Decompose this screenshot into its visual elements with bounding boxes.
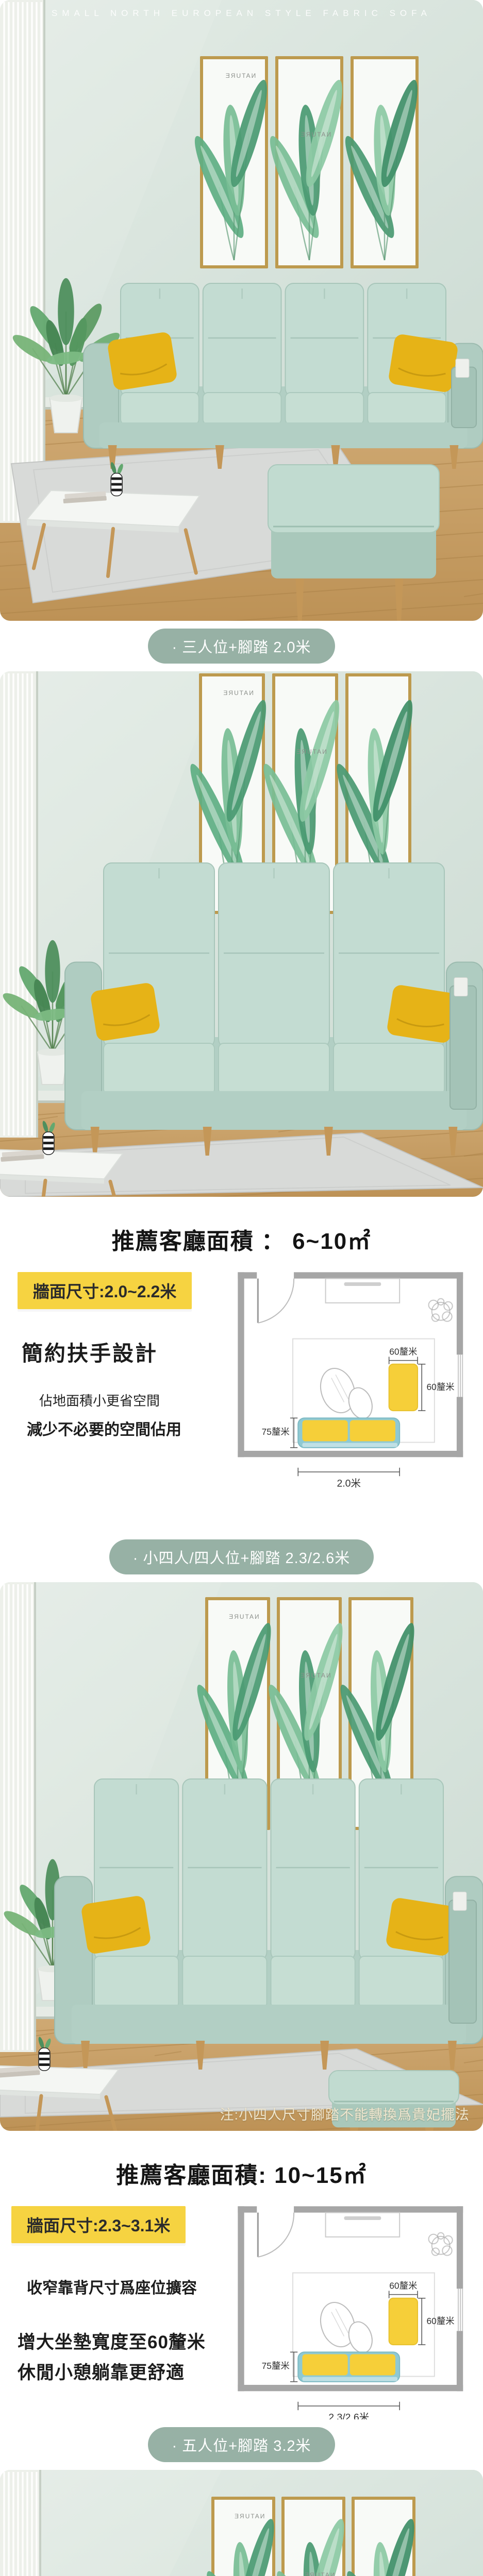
plan-plant-icon bbox=[438, 1299, 444, 1305]
plan-dim-top: 60釐米 bbox=[389, 1346, 417, 1357]
floor-plan: 60釐米60釐米75釐米2.0米 bbox=[230, 1265, 479, 1493]
svg-text:NATURE: NATURE bbox=[234, 2513, 264, 2520]
svg-text:NATURE: NATURE bbox=[222, 689, 253, 697]
feature-text-column-2: 牆面尺寸:2.3~3.1米 收窄靠背尺寸爲座位擴容 增大坐墊寬度至60釐米 休閒… bbox=[18, 2193, 230, 2384]
plan-plant-icon bbox=[442, 2246, 452, 2255]
plan-dim-left: 75釐米 bbox=[262, 2361, 290, 2371]
section-recommend-6-10: 推薦客廳面積 ： 6~10㎡ 牆面尺寸:2.0~2.2米 簡約扶手設計 佔地面積… bbox=[0, 1197, 483, 1532]
plan-plant-icon bbox=[442, 1312, 452, 1321]
sofa-product-detail-page: NATURENATURE SMALL NORTH EUROPEAN STYLE … bbox=[0, 0, 483, 2576]
svg-text:NATURE: NATURE bbox=[300, 131, 331, 138]
accent-pillow bbox=[90, 982, 161, 1042]
plan-plant-icon bbox=[432, 2248, 439, 2255]
feature-line: 簡約扶手設計 bbox=[22, 1336, 230, 1367]
floor-plan: 60釐米60釐米75釐米2.3/2.6米 bbox=[230, 2199, 479, 2419]
recommended-area-heading-1: 推薦客廳面積 ： 6~10㎡ bbox=[0, 1223, 483, 1256]
accent-pillow bbox=[80, 1895, 152, 1955]
living-room-scene: NATURENATURE bbox=[0, 2470, 483, 2576]
feature-line: 收窄靠背尺寸爲座位擴容 bbox=[27, 2275, 230, 2298]
badge-row-three-seat: · 三人位+腳踏 2.0米 bbox=[0, 621, 483, 671]
photo-four-seat-room: NATURENATURE 注:小四人尺寸腳踏不能轉換爲貴妃擺法 bbox=[0, 1582, 483, 2131]
photo-header-caption: SMALL NORTH EUROPEAN STYLE FABRIC SOFA bbox=[0, 8, 483, 19]
living-room-scene: NATURENATURE bbox=[0, 0, 483, 621]
photo-note: 注:小四人尺寸腳踏不能轉換爲貴妃擺法 bbox=[220, 2104, 470, 2124]
fabric-sofa bbox=[65, 863, 483, 1156]
plan-dim-right: 60釐米 bbox=[426, 2316, 454, 2326]
section-body-1: 牆面尺寸:2.0~2.2米 簡約扶手設計 佔地面積小更省空間 減少不必要的空間佔… bbox=[0, 1256, 483, 1493]
accent-pillow bbox=[107, 331, 178, 391]
svg-text:NATURE: NATURE bbox=[299, 1672, 330, 1679]
feature-line: 增大坐墊寬度至60釐米 bbox=[18, 2328, 230, 2354]
badge-row-five-seat: · 五人位+腳踏 3.2米 bbox=[0, 2419, 483, 2470]
accent-pillow bbox=[386, 984, 457, 1044]
window-blinds bbox=[0, 671, 38, 1138]
plan-dim-top: 60釐米 bbox=[389, 2280, 417, 2291]
wall-size-chip-1: 牆面尺寸:2.0~2.2米 bbox=[18, 1272, 192, 1309]
badge-five-seat: · 五人位+腳踏 3.2米 bbox=[148, 2427, 335, 2462]
living-room-photo-1: NATURENATURE bbox=[0, 0, 483, 621]
badge-three-seat: · 三人位+腳踏 2.0米 bbox=[148, 629, 335, 664]
living-room-photo-3: NATURENATURE bbox=[0, 1582, 483, 2131]
photo-three-seat-closeup: NATURENATURE bbox=[0, 671, 483, 1197]
photo-three-seat-room: NATURENATURE SMALL NORTH EUROPEAN STYLE … bbox=[0, 0, 483, 621]
svg-text:NATURE: NATURE bbox=[304, 2571, 335, 2576]
feature-line: 減少不必要的空間佔用 bbox=[27, 1417, 230, 1439]
tv-cabinet bbox=[326, 2213, 400, 2237]
badge-row-four-seat: · 小四人/四人位+腳踏 2.3/2.6米 bbox=[0, 1532, 483, 1582]
wall-art-triptych: NATURENATURE bbox=[188, 56, 424, 268]
plan-footstool bbox=[389, 2298, 418, 2345]
section-recommend-10-15: 推薦客廳面積: 10~15㎡ 牆面尺寸:2.3~3.1米 收窄靠背尺寸爲座位擴容… bbox=[0, 2131, 483, 2419]
living-room-photo-4: NATURENATURE bbox=[0, 2470, 483, 2576]
accent-pillow bbox=[388, 333, 459, 393]
plan-plant-icon bbox=[432, 1314, 439, 1321]
tv-cabinet bbox=[326, 1279, 400, 1303]
svg-text:NATURE: NATURE bbox=[295, 748, 326, 755]
badge-four-seat: · 小四人/四人位+腳踏 2.3/2.6米 bbox=[109, 1539, 374, 1574]
plan-plant-icon bbox=[429, 2234, 438, 2244]
plan-dim-bottom: 2.0米 bbox=[337, 1478, 361, 1489]
svg-text:NATURE: NATURE bbox=[228, 1613, 259, 1620]
window-blinds bbox=[0, 0, 45, 523]
wall-size-chip-2: 牆面尺寸:2.3~3.1米 bbox=[11, 2206, 186, 2243]
photo-five-seat-room: NATURENATURE bbox=[0, 2470, 483, 2576]
wall-art-triptych: NATURENATURE bbox=[200, 2497, 421, 2576]
feature-text-column-1: 牆面尺寸:2.0~2.2米 簡約扶手設計 佔地面積小更省空間 減少不必要的空間佔… bbox=[18, 1259, 230, 1439]
floor-plan-diagram-2: 60釐米60釐米75釐米2.3/2.6米 bbox=[230, 2199, 479, 2419]
window-blinds bbox=[0, 1582, 36, 2052]
plan-footstool bbox=[389, 1364, 418, 1411]
plan-dim-bottom: 2.3/2.6米 bbox=[328, 2412, 369, 2419]
floor-plan-diagram-1: 60釐米60釐米75釐米2.0米 bbox=[230, 1265, 479, 1493]
recommended-area-heading-2: 推薦客廳面積: 10~15㎡ bbox=[0, 2157, 483, 2190]
feature-line: 休閒小憩躺靠更舒適 bbox=[18, 2358, 230, 2384]
plan-plant-icon bbox=[429, 1300, 438, 1310]
window-blinds bbox=[0, 2470, 41, 2576]
accent-pillow bbox=[385, 1897, 456, 1957]
plan-dim-right: 60釐米 bbox=[426, 1382, 454, 1392]
living-room-scene: NATURENATURE bbox=[0, 671, 483, 1197]
feature-line: 佔地面積小更省空間 bbox=[39, 1391, 230, 1410]
plan-dim-left: 75釐米 bbox=[262, 1427, 290, 1437]
living-room-scene: NATURENATURE bbox=[0, 1582, 483, 2131]
svg-text:NATURE: NATURE bbox=[225, 72, 256, 79]
living-room-photo-2: NATURENATURE bbox=[0, 671, 483, 1197]
section-body-2: 牆面尺寸:2.3~3.1米 收窄靠背尺寸爲座位擴容 增大坐墊寬度至60釐米 休閒… bbox=[0, 2190, 483, 2419]
